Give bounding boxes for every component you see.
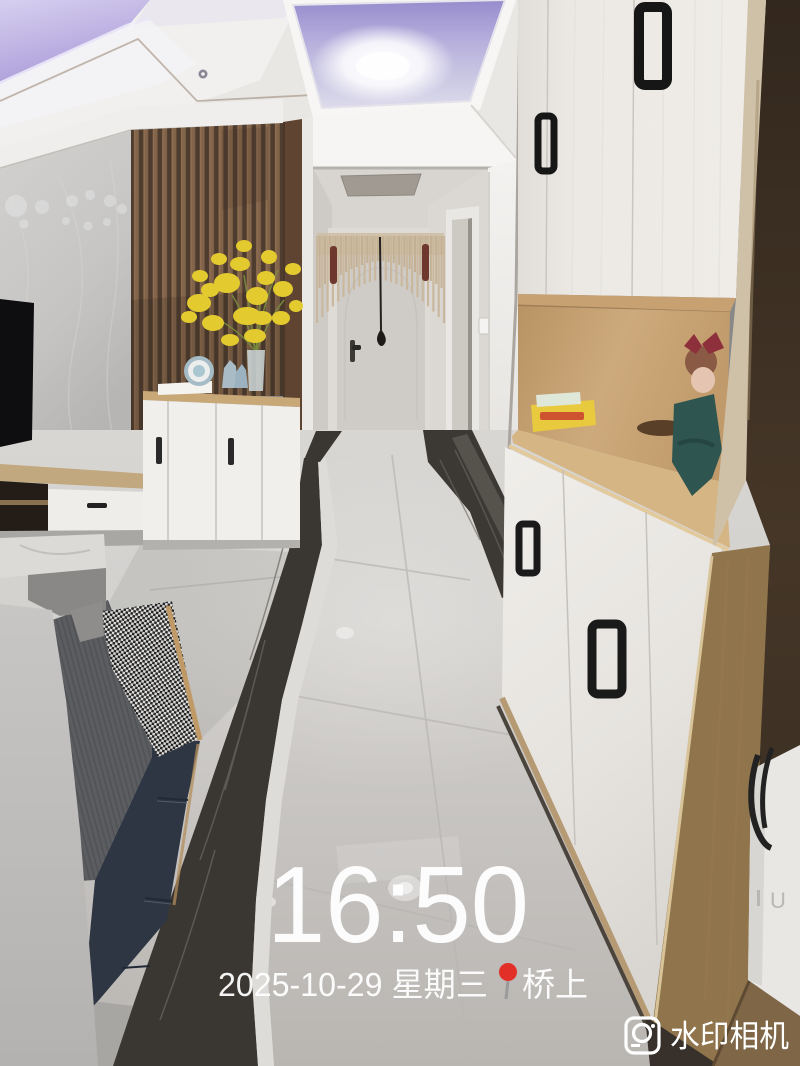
svg-text:U: U [770, 888, 786, 913]
svg-text:16:50: 16:50 [267, 844, 529, 966]
svg-text:2025-10-29 星期三: 2025-10-29 星期三 [218, 966, 488, 1003]
svg-text:水印相机: 水印相机 [670, 1019, 789, 1054]
svg-text:桥上: 桥上 [522, 966, 588, 1003]
